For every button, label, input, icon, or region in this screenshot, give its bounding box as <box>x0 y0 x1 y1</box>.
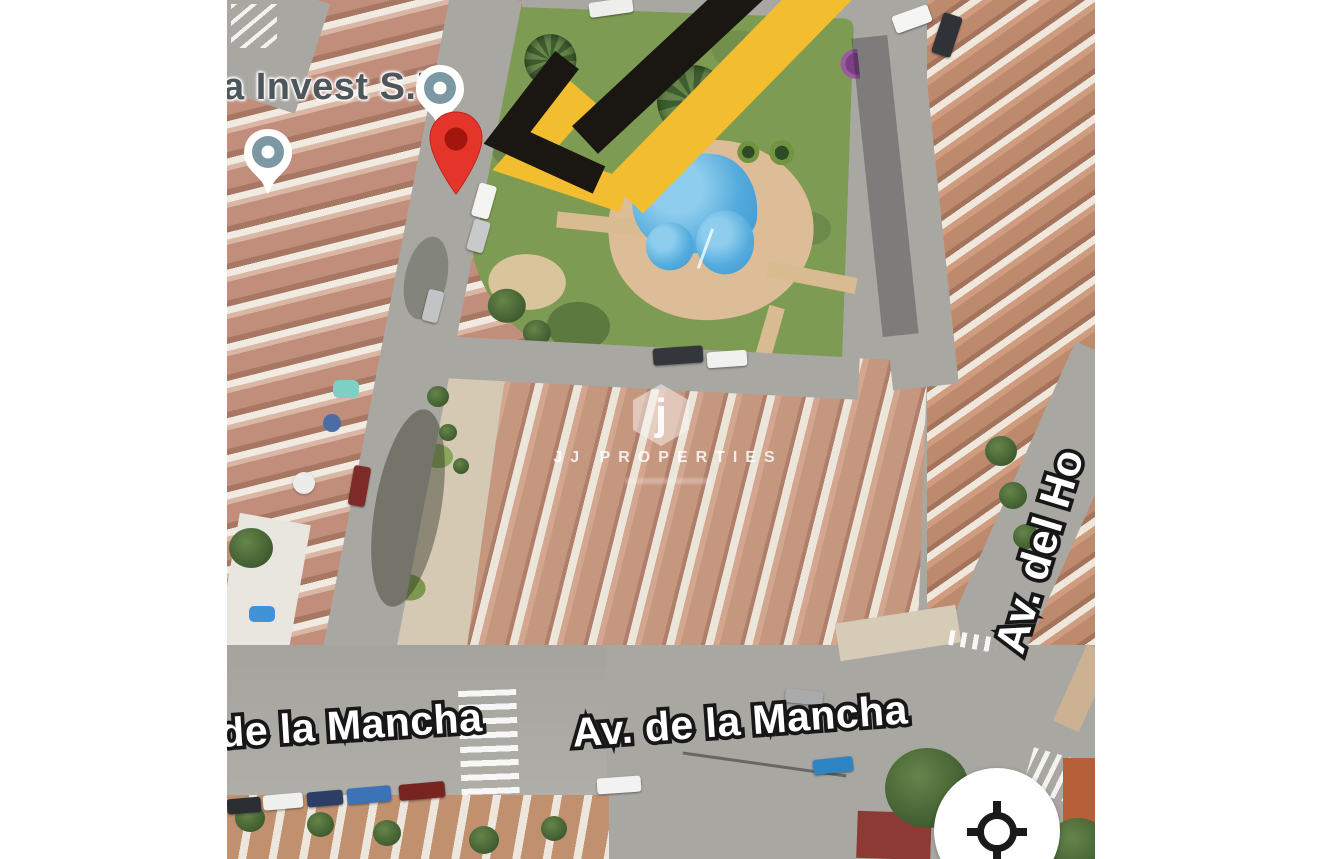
tree <box>487 288 526 323</box>
crosshair-ring <box>977 812 1017 852</box>
satellite-map-view[interactable]: a Invest S.L j JJ PROPERTIES <box>227 0 1095 859</box>
letterbox-margin-left <box>0 0 227 859</box>
road-markings-top-left <box>231 4 277 48</box>
van-white <box>706 350 747 369</box>
car-white <box>596 775 641 794</box>
screenshot-stage: a Invest S.L j JJ PROPERTIES <box>0 0 1320 859</box>
small-garden-pool <box>249 606 275 622</box>
watermark-tagline-blur <box>625 478 711 484</box>
tree <box>469 826 499 854</box>
palm-tree <box>524 33 578 87</box>
parked-car-dark <box>227 797 262 815</box>
tree <box>541 816 567 841</box>
crosshair-tick-top <box>993 801 1001 813</box>
crosshair-tick-right <box>1015 828 1027 836</box>
tree <box>229 528 273 568</box>
tree <box>999 482 1027 509</box>
tree <box>427 386 449 407</box>
poi-marker-icon[interactable] <box>241 127 295 197</box>
watermark-title: JJ PROPERTIES <box>543 449 793 467</box>
blue-umbrella <box>323 414 341 432</box>
crosshair-tick-bottom <box>993 851 1001 859</box>
parked-car-navy <box>306 789 343 807</box>
crosshair-tick-left <box>967 828 979 836</box>
tree <box>453 458 469 474</box>
business-label[interactable]: a Invest S.L <box>227 66 440 109</box>
tree <box>307 812 334 837</box>
red-map-pin-icon[interactable] <box>427 110 485 198</box>
pool-cover <box>333 380 359 398</box>
watermark-letter: j <box>655 390 667 440</box>
palm-tree <box>750 37 781 68</box>
letterbox-margin-right <box>1095 0 1320 859</box>
palm-tree <box>656 64 730 138</box>
community-park <box>464 6 854 371</box>
tree <box>985 436 1017 466</box>
white-patio-umbrella <box>293 472 315 494</box>
tree <box>439 424 457 441</box>
tree <box>373 820 401 846</box>
topiary-bush <box>769 140 795 166</box>
car-dark <box>652 345 703 365</box>
